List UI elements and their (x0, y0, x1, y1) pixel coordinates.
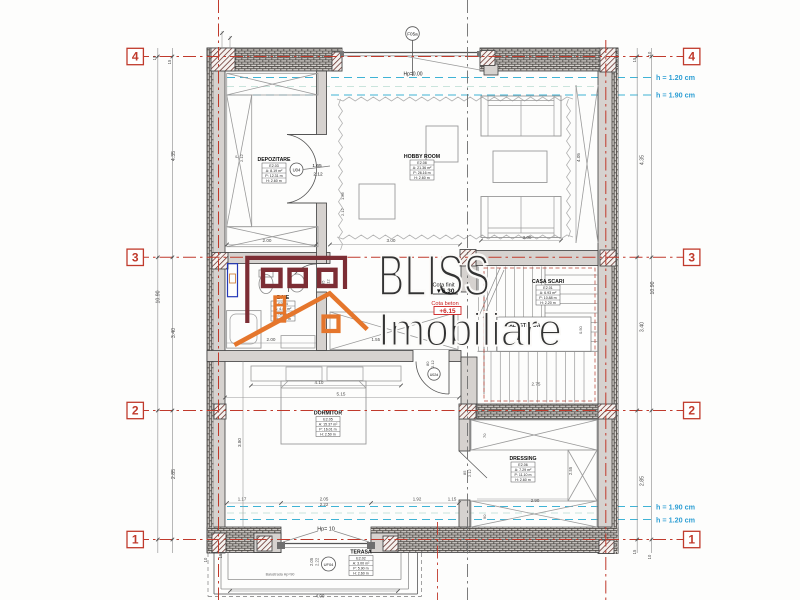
svg-text:4: 4 (132, 50, 139, 64)
svg-text:2.22: 2.22 (315, 557, 320, 566)
svg-text:HOBBY ROOM: HOBBY ROOM (404, 154, 440, 160)
svg-text:Hp=0.00: Hp=0.00 (403, 72, 422, 78)
svg-text:A: 15.37 m²: A: 15.37 m² (319, 422, 338, 426)
svg-text:P: 26.16 m: P: 26.16 m (413, 171, 430, 175)
svg-text:h = 1.20 cm: h = 1.20 cm (656, 73, 695, 82)
svg-text:3: 3 (132, 251, 139, 265)
svg-text:h = 1.90 cm: h = 1.90 cm (656, 503, 695, 512)
svg-text:H: 2.50 m: H: 2.50 m (320, 432, 336, 436)
svg-text:H: 2.60 m: H: 2.60 m (353, 571, 369, 575)
svg-text:E2.06: E2.06 (518, 463, 527, 467)
svg-text:2.85: 2.85 (640, 476, 646, 486)
svg-text:2.85: 2.85 (171, 469, 177, 479)
svg-text:3.40: 3.40 (640, 322, 646, 332)
svg-text:P: 10.88 m: P: 10.88 m (539, 296, 556, 300)
svg-text:2.00: 2.00 (267, 337, 276, 342)
svg-text:15: 15 (218, 553, 223, 558)
svg-text:1.65: 1.65 (312, 163, 322, 169)
svg-text:4.00: 4.00 (316, 594, 325, 599)
svg-text:A: 6.93 m²: A: 6.93 m² (540, 291, 557, 295)
svg-text:A: 3.00 m²: A: 3.00 m² (353, 561, 370, 565)
svg-text:E2.08: E2.08 (417, 161, 426, 165)
svg-text:4.35: 4.35 (640, 155, 646, 165)
svg-text:h = 1.90 cm: h = 1.90 cm (656, 91, 695, 100)
svg-text:DEPOZITARE: DEPOZITARE (257, 157, 291, 163)
svg-text:2.90: 2.90 (531, 498, 540, 503)
svg-text:15: 15 (632, 57, 637, 62)
svg-text:H: 2.60 m: H: 2.60 m (414, 176, 430, 180)
svg-text:70: 70 (482, 433, 487, 438)
svg-text:TERASA: TERASA (350, 550, 372, 556)
svg-text:1: 1 (688, 533, 695, 547)
svg-text:4.35: 4.35 (171, 151, 177, 161)
svg-text:F05a: F05a (407, 32, 418, 37)
svg-text:3.00: 3.00 (523, 235, 532, 240)
svg-text:1.92: 1.92 (413, 497, 422, 502)
svg-text:15: 15 (632, 549, 637, 554)
svg-text:1.86: 1.86 (340, 191, 345, 200)
svg-text:P: 12.31 m: P: 12.31 m (265, 174, 282, 178)
svg-text:E2.03: E2.03 (269, 164, 278, 168)
svg-text:P: 16.01 m: P: 16.01 m (319, 427, 336, 431)
svg-text:4: 4 (688, 50, 695, 64)
svg-text:10: 10 (152, 55, 157, 60)
svg-text:10: 10 (647, 554, 652, 559)
svg-text:2.75: 2.75 (532, 382, 541, 387)
svg-text:H: 2.60 m: H: 2.60 m (515, 478, 531, 482)
svg-text:2.55: 2.55 (568, 466, 573, 475)
svg-text:A: 21.36 m²: A: 21.36 m² (413, 166, 432, 170)
svg-text:2.12: 2.12 (340, 207, 345, 216)
svg-text:10: 10 (647, 51, 652, 56)
svg-text:E2.02: E2.02 (356, 556, 365, 560)
svg-text:2.12: 2.12 (239, 153, 244, 162)
svg-text:P: 5.90 m: P: 5.90 m (353, 566, 368, 570)
svg-text:10.90: 10.90 (650, 281, 656, 294)
svg-text:Balustrada Hp=90: Balustrada Hp=90 (266, 573, 295, 577)
svg-text:CASA SCARI: CASA SCARI (532, 279, 565, 285)
svg-text:0.50: 0.50 (578, 325, 583, 334)
svg-text:Hp= 10: Hp= 10 (317, 527, 335, 533)
svg-text:U04: U04 (293, 168, 301, 173)
svg-text:U02d: U02d (430, 373, 439, 377)
svg-text:2: 2 (132, 404, 139, 418)
svg-text:H: 2.60 m: H: 2.60 m (266, 179, 282, 183)
svg-text:A: 7.29 m²: A: 7.29 m² (515, 468, 532, 472)
svg-text:A: 8.19 m²: A: 8.19 m² (266, 169, 283, 173)
svg-text:3.40: 3.40 (171, 328, 177, 338)
svg-text:2.05: 2.05 (309, 557, 314, 566)
svg-text:P: 11.10 m: P: 11.10 m (514, 473, 531, 477)
svg-text:BLISS: BLISS (378, 243, 490, 308)
svg-text:2.12: 2.12 (430, 359, 435, 368)
svg-text:5.15: 5.15 (337, 392, 346, 397)
svg-text:Imobiliare: Imobiliare (378, 304, 562, 356)
svg-text:h = 1.20 cm: h = 1.20 cm (656, 516, 695, 525)
svg-text:DORMITOR: DORMITOR (314, 411, 342, 417)
svg-text:DRESSING: DRESSING (509, 456, 536, 462)
svg-text:1.15: 1.15 (448, 497, 457, 502)
svg-text:4.10: 4.10 (315, 380, 324, 385)
svg-text:1.17: 1.17 (238, 497, 247, 502)
svg-text:2.00: 2.00 (263, 238, 272, 243)
svg-text:+6.15: +6.15 (439, 308, 456, 315)
svg-text:UF04: UF04 (324, 562, 335, 567)
svg-text:2.22: 2.22 (320, 502, 329, 507)
svg-text:90: 90 (482, 514, 487, 519)
svg-text:3.80: 3.80 (237, 438, 242, 447)
svg-text:2.05: 2.05 (320, 497, 329, 502)
svg-text:4.05: 4.05 (576, 153, 581, 162)
svg-text:10.90: 10.90 (156, 290, 162, 303)
svg-text:10: 10 (203, 557, 208, 562)
svg-text:2.12: 2.12 (313, 172, 323, 178)
svg-text:1: 1 (132, 533, 139, 547)
svg-text:2: 2 (688, 404, 695, 418)
svg-text:E2.05: E2.05 (323, 417, 332, 421)
svg-text:3: 3 (688, 251, 695, 265)
svg-text:E2.01: E2.01 (543, 286, 552, 290)
svg-text:15: 15 (167, 59, 172, 64)
